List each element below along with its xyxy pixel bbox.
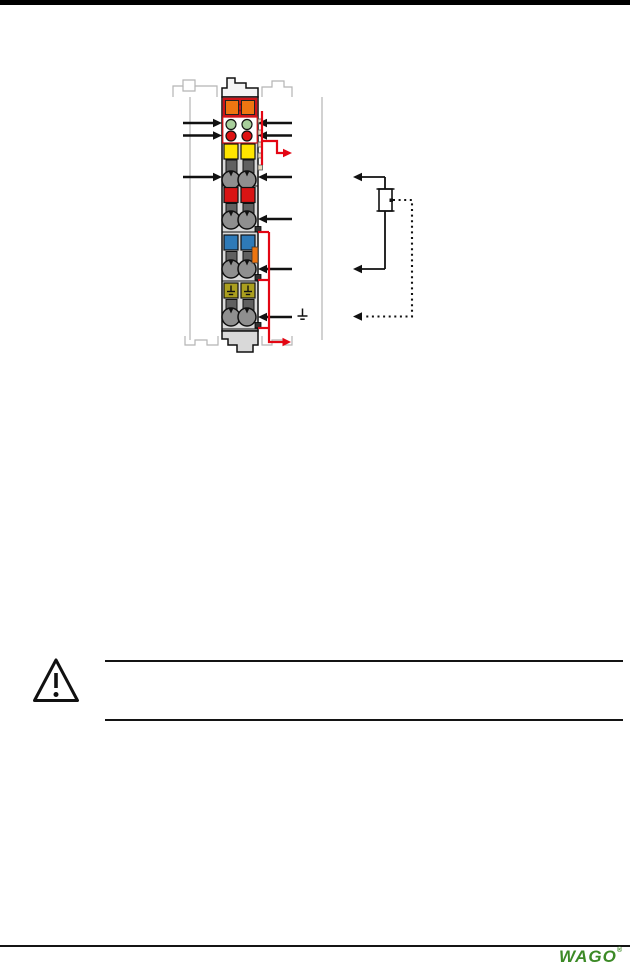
potentiometer-symbol (353, 173, 395, 273)
left-signal-arrows (183, 119, 222, 182)
earth-ground-symbol (298, 309, 308, 320)
green-led (242, 120, 252, 130)
note-bottom-rule (105, 719, 623, 721)
dotted-wiper-line (353, 200, 412, 321)
module-wiring-diagram (165, 75, 470, 365)
module-top-cap (222, 78, 258, 97)
green-led (226, 120, 236, 130)
power-supply-lines (258, 111, 292, 346)
status-led-block (223, 117, 258, 143)
red-led (226, 131, 236, 141)
wago-logo: WAGO® (559, 947, 622, 969)
page-top-bar (0, 0, 630, 5)
warning-triangle-icon (31, 656, 81, 706)
red-led (242, 131, 252, 141)
module-bottom-foot (222, 331, 258, 352)
wago-logo-text: WAGO (559, 947, 617, 966)
wiring-diagram-svg (165, 75, 470, 365)
right-signal-arrows (258, 119, 292, 322)
power-connector-block (223, 98, 258, 117)
note-top-rule (105, 660, 623, 662)
registered-trademark: ® (617, 947, 622, 954)
side-latch-orange (252, 247, 258, 263)
footer-rule (0, 945, 630, 947)
